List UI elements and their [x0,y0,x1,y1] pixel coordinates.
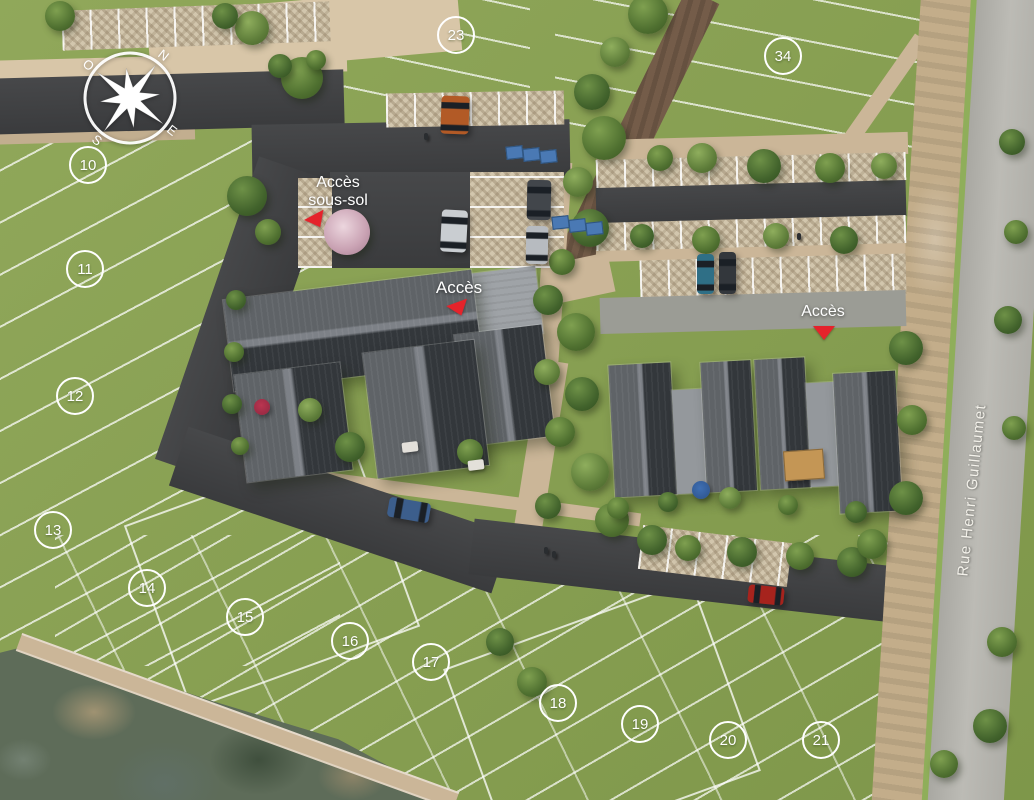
lot-marker-18[interactable]: 18 [539,684,577,722]
lot-marker-17[interactable]: 17 [412,643,450,681]
access-left-building-label: Accès [436,278,482,297]
access-right-building-label: Accès [801,303,845,321]
compass-rose: N E S O [70,38,190,158]
lot-marker-16[interactable]: 16 [331,622,369,660]
lot-marker-19[interactable]: 19 [621,705,659,743]
access-basement-line1: Accès [308,174,368,192]
access-right-building-arrow[interactable] [813,326,835,340]
access-basement-line2: sous-sol [308,192,368,210]
lot-marker-23[interactable]: 23 [437,16,475,54]
lot-marker-12[interactable]: 12 [56,377,94,415]
compass-south-label: S [89,132,105,149]
lot-marker-20[interactable]: 20 [709,721,747,759]
lot-marker-15[interactable]: 15 [226,598,264,636]
lot-marker-11[interactable]: 11 [66,250,104,288]
lot-marker-13[interactable]: 13 [34,511,72,549]
site-plan-aerial: 1011121314151617181920212334 N E S O Acc… [0,0,1034,800]
access-basement-label: Accès sous-sol [308,174,368,210]
lot-marker-14[interactable]: 14 [128,569,166,607]
lot-marker-21[interactable]: 21 [802,721,840,759]
lot-marker-34[interactable]: 34 [764,37,802,75]
